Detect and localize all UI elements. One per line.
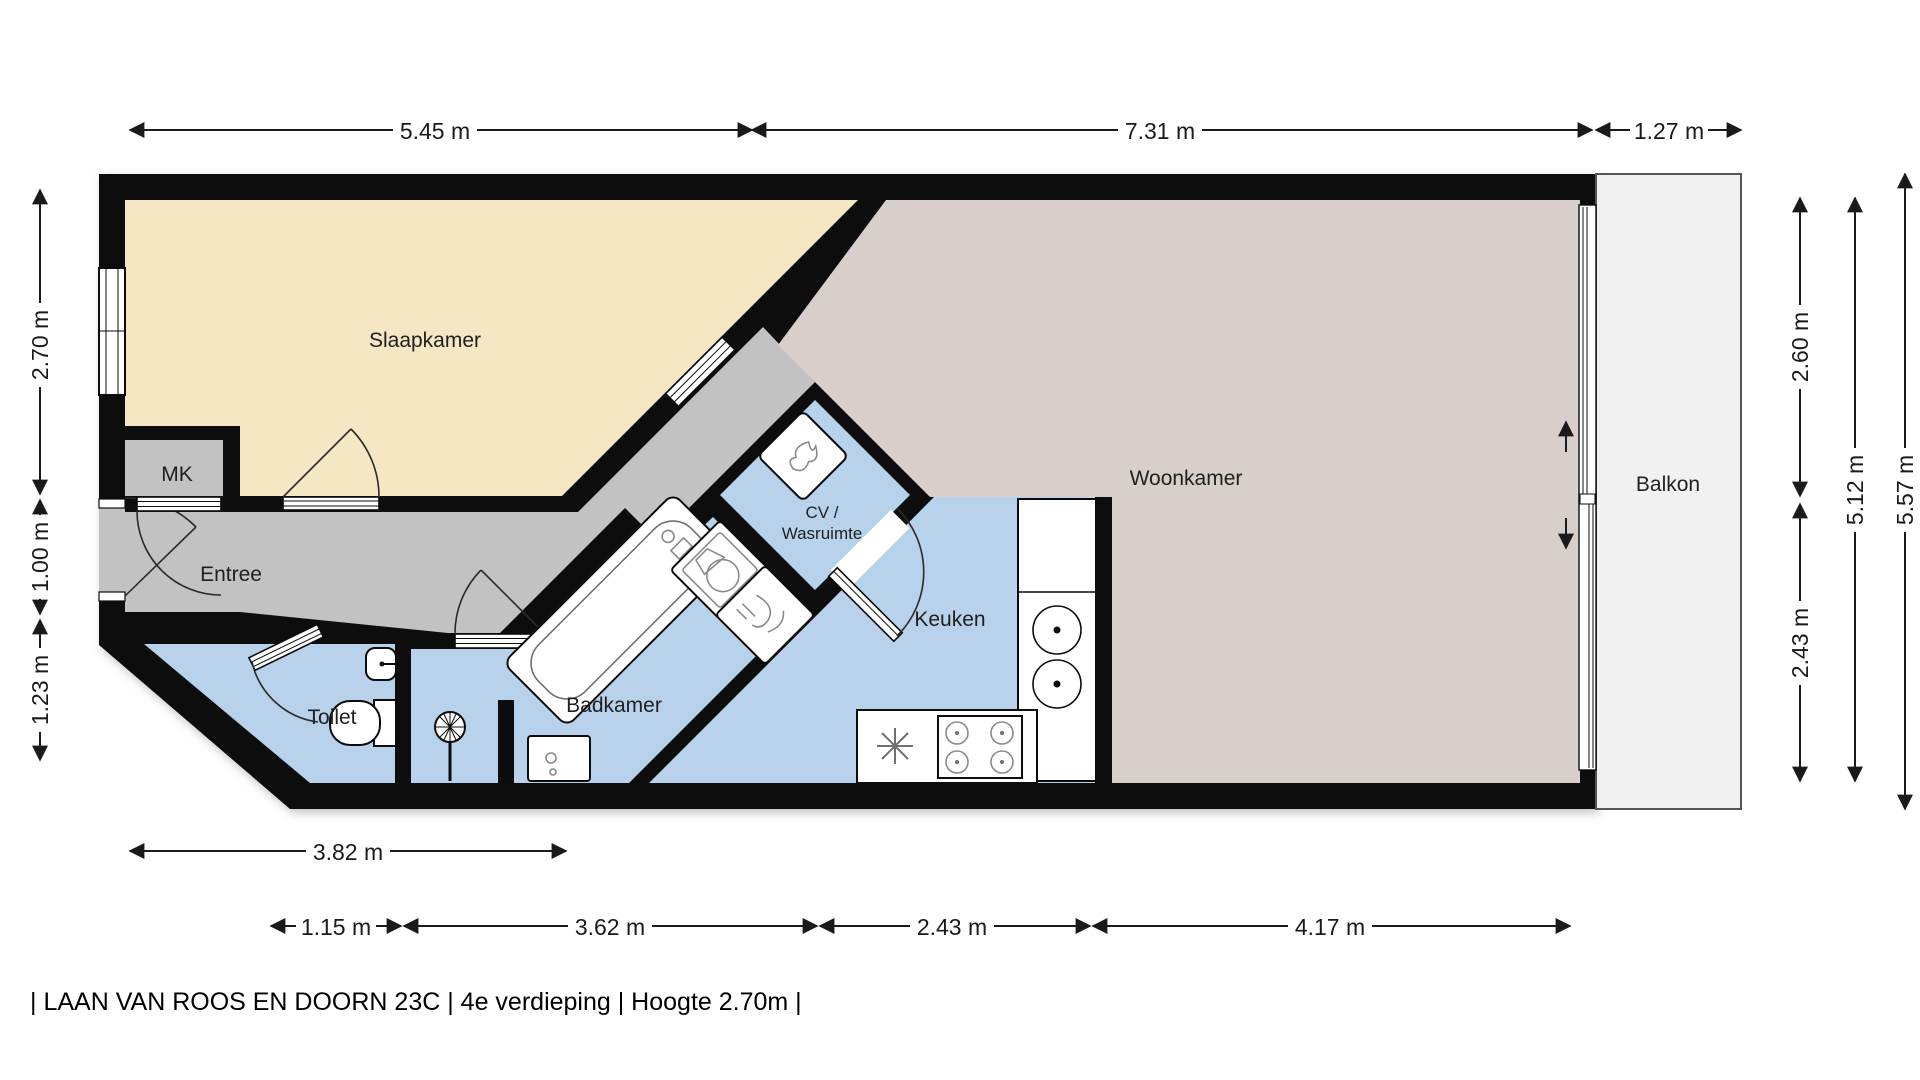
window-icon [99, 268, 125, 395]
room-label-toilet: Toilet [307, 706, 356, 729]
room-label-badkamer: Badkamer [566, 694, 662, 717]
svg-text:1.27 m: 1.27 m [1634, 118, 1704, 144]
dimension-bottom-3: 3.62 m [404, 912, 817, 940]
dimension-right-4: 5.57 m [1891, 174, 1919, 809]
hand-basin-icon [366, 648, 396, 680]
dimension-bottom-4: 2.43 m [820, 912, 1090, 940]
dimension-left-2: 1.00 m [26, 500, 54, 614]
dimension-bottom-1: 3.82 m [130, 837, 566, 865]
room-label-keuken: Keuken [914, 608, 985, 631]
room-label-slaapkamer: Slaapkamer [369, 329, 481, 352]
gas-stove-icon [938, 716, 1022, 778]
freezer-icon [877, 728, 913, 764]
room-label-woonkamer: Woonkamer [1130, 467, 1243, 490]
dimension-top-3: 1.27 m [1596, 116, 1741, 144]
bathroom-wall-stub [498, 700, 514, 783]
svg-text:5.45 m: 5.45 m [400, 118, 470, 144]
dimension-left-3: 1.23 m [26, 620, 54, 760]
footer-address-line: | LAAN VAN ROOS EN DOORN 23C | 4e verdie… [30, 988, 802, 1016]
svg-text:2.60 m: 2.60 m [1787, 312, 1813, 382]
dimension-bottom-2: 1.15 m [271, 912, 401, 940]
svg-text:2.70 m: 2.70 m [27, 310, 53, 380]
svg-text:1.15 m: 1.15 m [301, 914, 371, 940]
svg-text:3.82 m: 3.82 m [313, 839, 383, 865]
room-label-entree: Entree [200, 563, 262, 586]
kitchen-bottom-counter [857, 710, 1037, 783]
room-label-mk: MK [161, 463, 193, 486]
dimension-top-2: 7.31 m [752, 116, 1592, 144]
dimension-right-1: 2.60 m [1786, 198, 1814, 496]
svg-text:5.57 m: 5.57 m [1892, 455, 1918, 525]
room-label-balkon: Balkon [1636, 473, 1700, 496]
svg-text:7.31 m: 7.31 m [1125, 118, 1195, 144]
svg-text:4.17 m: 4.17 m [1295, 914, 1365, 940]
room-label-cv-line2: Wasruimte [782, 524, 863, 543]
dimension-top-1: 5.45 m [130, 116, 752, 144]
dimension-left-1: 2.70 m [26, 190, 54, 494]
floorplan-canvas: Slaapkamer Woonkamer Entree MK Toilet Ba… [0, 0, 1920, 1080]
room-label-cv-line1: CV / [805, 503, 838, 522]
svg-text:1.23 m: 1.23 m [27, 655, 53, 725]
svg-text:5.12 m: 5.12 m [1842, 455, 1868, 525]
svg-text:3.62 m: 3.62 m [575, 914, 645, 940]
svg-text:2.43 m: 2.43 m [917, 914, 987, 940]
dimension-right-3: 5.12 m [1841, 198, 1869, 781]
dimension-bottom-5: 4.17 m [1093, 912, 1570, 940]
vanity-unit-icon [528, 736, 590, 781]
svg-text:2.43 m: 2.43 m [1787, 608, 1813, 678]
dimension-right-2: 2.43 m [1786, 504, 1814, 781]
svg-text:1.00 m: 1.00 m [27, 522, 53, 592]
